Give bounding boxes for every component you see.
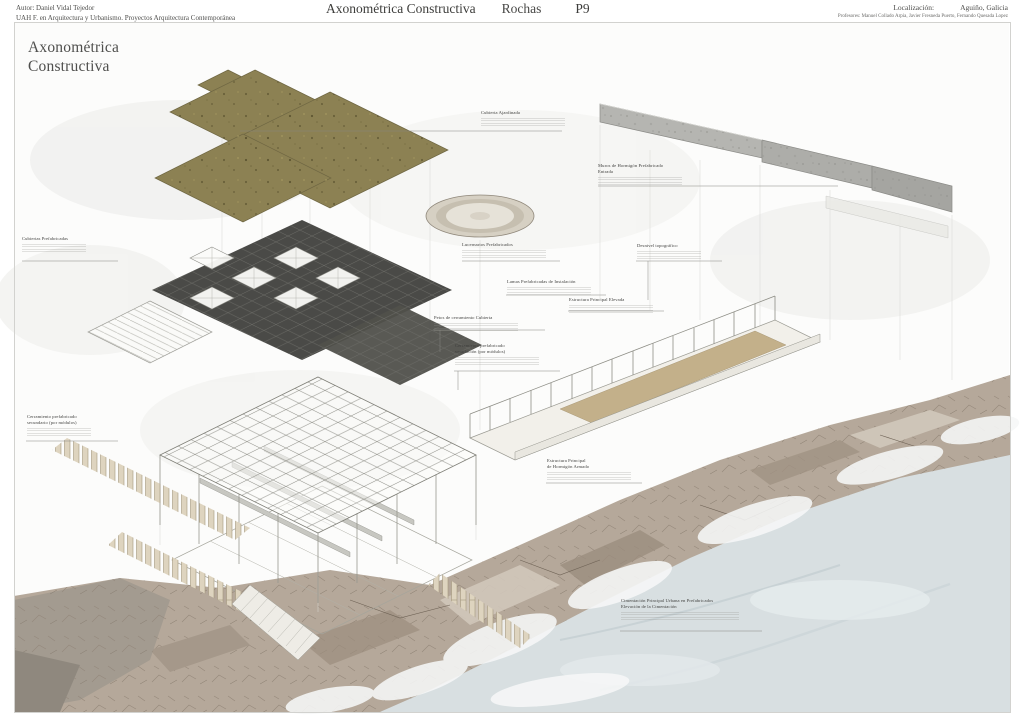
annotation-heading: Petos de cerramiento Cubierta — [434, 315, 518, 321]
annotation-fineprint — [637, 251, 701, 260]
annotation-subheading: ventilación (por módulos) — [455, 349, 539, 355]
annotation-heading: Cubiertas Prefabricadas — [22, 236, 86, 242]
annotation-fineprint — [22, 244, 86, 253]
annotation-subheading: de Hormigón Armado — [547, 464, 631, 470]
annotation-heading: Lucernarios Prefabricados — [462, 242, 546, 248]
annotation-lamas-instalacion: Lamas Prefabricadas de Instalación — [507, 279, 591, 296]
annotation-subheading: secundario (por módulos) — [27, 420, 91, 426]
annotation-fineprint — [547, 472, 631, 481]
annotation-heading: Estructura Principal Elevada — [569, 297, 653, 303]
annotation-subheading: Elevación de la Cimentación — [621, 604, 739, 610]
annotation-heading: Lamas Prefabricadas de Instalación — [507, 279, 591, 285]
annotation-fineprint — [27, 428, 91, 437]
annotation-lucernarios-prefabricados: Lucernarios Prefabricados — [462, 242, 546, 259]
presentation-board: Autor: Daniel Vidal Tejedor UAH F. en Ar… — [0, 0, 1024, 723]
annotation-fineprint — [462, 250, 546, 259]
annotation-cimentacion-urbana: Cimentación Principal Urbana en Prefabri… — [621, 598, 739, 621]
drawing-title-line2: Constructiva — [28, 57, 119, 76]
annotation-fineprint — [621, 612, 739, 621]
annotation-desnivel-topografico: Desnivel topográfico — [637, 243, 701, 260]
annotation-petos-cubierta: Petos de cerramiento Cubierta — [434, 315, 518, 332]
annotation-estructura-elevada: Estructura Principal Elevada — [569, 297, 653, 314]
annotation-cerramiento-ventilacion: Cerramiento prefabricado ventilación (po… — [455, 343, 539, 366]
drawing-title-line1: Axonométrica — [28, 38, 119, 57]
annotation-heading: Cubierta Ajardinada — [481, 110, 565, 116]
annotation-estructura-hormigon: Estructura Principal de Hormigón Armado — [547, 458, 631, 481]
annotation-fineprint — [569, 305, 653, 314]
annotation-fineprint — [481, 118, 565, 127]
annotation-muros-hormigon-entrada: Muros de Hormigón Prefabricado Entrada — [598, 163, 682, 186]
annotation-subheading: Entrada — [598, 169, 682, 175]
annotation-fineprint — [455, 357, 539, 366]
drawing-title: Axonométrica Constructiva — [28, 38, 119, 77]
circular-tank — [426, 195, 534, 237]
annotation-cubiertas-prefabricadas: Cubiertas Prefabricadas — [22, 236, 86, 253]
annotation-cubierta-ajardinada: Cubierta Ajardinada — [481, 110, 565, 127]
annotation-fineprint — [507, 287, 591, 296]
annotation-fineprint — [434, 323, 518, 332]
annotation-fineprint — [598, 177, 682, 186]
annotation-cerramiento-secundario: Cerramiento prefabricado secundario (por… — [27, 414, 91, 437]
annotation-heading: Desnivel topográfico — [637, 243, 701, 249]
